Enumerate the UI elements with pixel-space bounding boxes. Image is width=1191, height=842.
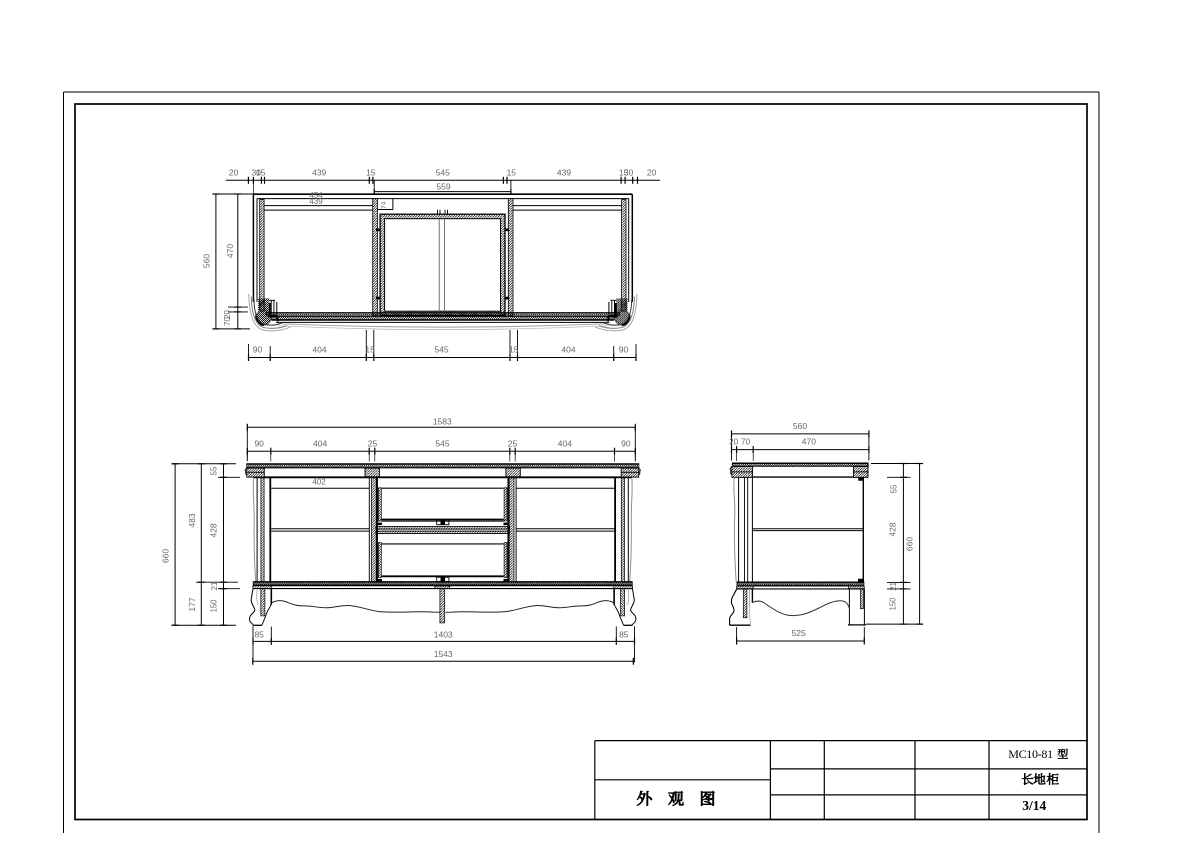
svg-text:439: 439 (312, 167, 326, 177)
svg-text:90: 90 (621, 439, 631, 449)
svg-text:55: 55 (890, 484, 899, 493)
svg-text:74: 74 (380, 201, 387, 209)
svg-text:1403: 1403 (434, 630, 453, 640)
svg-text:90: 90 (253, 344, 263, 354)
svg-text:545: 545 (436, 167, 450, 177)
svg-text:85: 85 (619, 630, 629, 640)
svg-text:21: 21 (210, 582, 219, 591)
svg-text:1583: 1583 (433, 416, 452, 426)
svg-text:559: 559 (436, 181, 450, 191)
svg-text:439: 439 (309, 197, 323, 206)
svg-text:3/14: 3/14 (1022, 798, 1046, 813)
svg-text:545: 545 (434, 344, 448, 354)
svg-text:15: 15 (365, 344, 375, 354)
svg-text:MC10-81: MC10-81 (1008, 747, 1053, 761)
svg-text:70: 70 (741, 438, 750, 447)
svg-text:150: 150 (888, 597, 897, 611)
svg-text:470: 470 (802, 437, 816, 447)
svg-text:15: 15 (507, 167, 517, 177)
svg-text:21: 21 (889, 582, 898, 591)
svg-text:428: 428 (887, 522, 897, 536)
svg-text:560: 560 (202, 254, 212, 268)
svg-text:177: 177 (187, 597, 197, 611)
svg-text:90: 90 (619, 344, 629, 354)
svg-text:90: 90 (254, 439, 264, 449)
svg-text:404: 404 (558, 439, 572, 449)
svg-text:560: 560 (793, 421, 807, 431)
svg-text:439: 439 (557, 167, 571, 177)
svg-text:404: 404 (313, 439, 327, 449)
svg-text:15: 15 (509, 344, 519, 354)
svg-text:85: 85 (254, 630, 264, 640)
svg-text:70: 70 (223, 317, 232, 326)
svg-text:404: 404 (561, 344, 575, 354)
svg-text:55: 55 (210, 466, 219, 475)
svg-text:15: 15 (256, 167, 266, 177)
svg-text:1543: 1543 (434, 649, 453, 659)
svg-text:30: 30 (624, 167, 634, 177)
svg-text:15: 15 (366, 167, 376, 177)
svg-text:660: 660 (905, 537, 915, 551)
svg-text:20: 20 (647, 167, 657, 177)
svg-text:20: 20 (229, 167, 239, 177)
svg-text:20: 20 (729, 438, 738, 447)
svg-text:25: 25 (508, 439, 518, 449)
svg-text:150: 150 (210, 599, 219, 613)
svg-text:483: 483 (187, 513, 197, 527)
svg-text:525: 525 (792, 628, 806, 638)
svg-text:25: 25 (368, 439, 378, 449)
svg-text:404: 404 (312, 344, 326, 354)
svg-text:470: 470 (225, 244, 235, 258)
svg-text:660: 660 (160, 549, 170, 563)
svg-text:545: 545 (435, 439, 449, 449)
svg-text:402: 402 (312, 478, 326, 487)
svg-text:428: 428 (209, 523, 219, 537)
